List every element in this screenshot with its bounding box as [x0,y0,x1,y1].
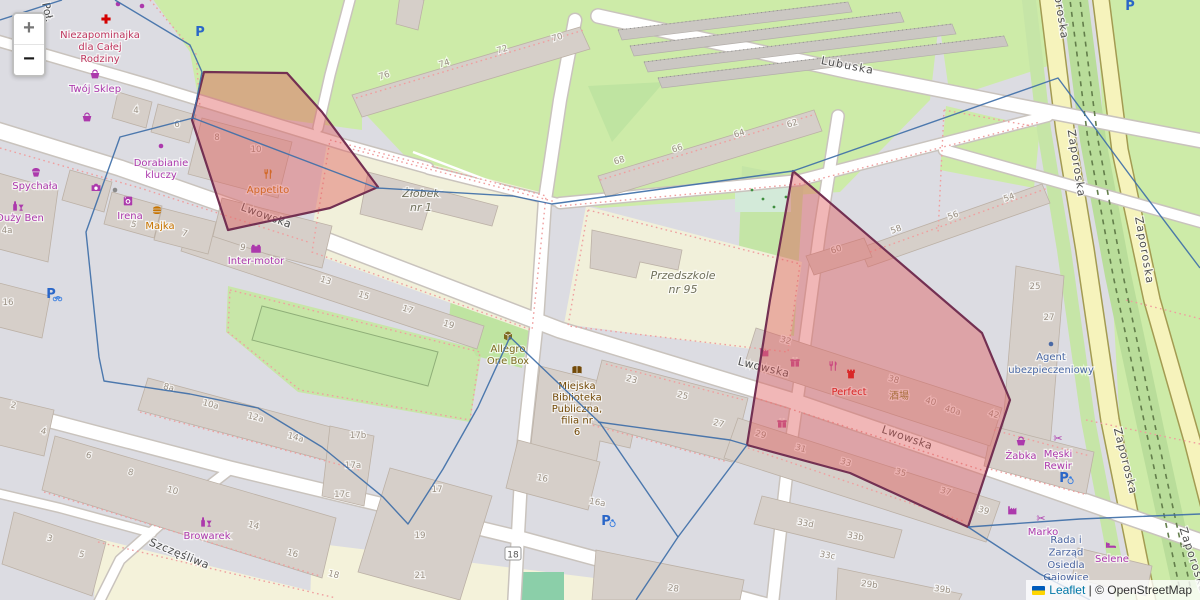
dot-icon [159,144,164,149]
house-number: 4 [133,106,139,116]
poi-label-agent-ubezp: Agent [1036,352,1066,363]
house-number: 27 [1043,313,1054,323]
house-number: 17a [345,461,361,471]
leaflet-link[interactable]: Leaflet [1049,583,1085,597]
house-number: 4a [2,226,13,236]
house-number: 28 [667,583,679,594]
dot-icon [140,4,145,9]
poi-label-biblioteka: filia nr [561,416,594,427]
poi-label-przedszkole: Przedszkole [650,269,715,282]
svg-text:18: 18 [507,551,519,561]
burger-icon [153,206,161,214]
house-number: 17 [431,485,442,495]
house-number: 33c [819,550,837,563]
poi-label-dorabianie-kluczy: Dorabianie [134,158,189,169]
green-dot-icon [785,196,788,199]
poi-label-browarek: Browarek [183,531,230,542]
poi-label-rada-osiedla: Rada i [1050,535,1081,546]
poi-label-inter-motor: Inter-motor [228,256,285,267]
dot-icon [1049,342,1054,347]
poi-label-duzy-ben: Duży Ben [0,213,44,224]
poi-label-rada-osiedla: Osiedla [1047,560,1084,571]
house-number: 17b [350,431,367,441]
poi-label-niezapominajka: Niezapominajka [60,30,140,41]
poi-label-allegro-one-box: One Box [487,356,529,367]
poi-label-dorabianie-kluczy: kluczy [145,170,177,181]
poi-label-agent-ubezp: ubezpieczeniowy [1008,365,1094,376]
poi-label-selene: Selene [1095,554,1129,565]
map-tiles: 468107674727068666462585654602527244a165… [0,0,1200,600]
pharmacy-cross-icon [101,14,110,23]
poi-label-zabka: Żabka [1005,449,1036,462]
poi-label-zlobek: nr 1 [410,201,432,214]
road-shield: 18 [505,547,521,561]
cupcake-icon [32,168,40,177]
house-number: 19 [414,531,425,541]
poi-label-majka: Majka [145,221,174,232]
house-number: 21 [414,571,425,581]
scissors-icon: ✂ [1053,432,1062,445]
boundary-line [678,445,747,537]
svg-text:✂: ✂ [1053,432,1062,445]
zoom-control: + − [12,12,46,77]
parking-plain-icon: P [195,25,205,40]
svg-text:✂: ✂ [1036,512,1045,525]
svg-text:P: P [195,25,205,40]
svg-text:P: P [1059,471,1069,486]
svg-text:P: P [46,287,56,302]
factory-icon [1008,506,1016,514]
parking-plain-icon: P [1125,0,1135,14]
parcel-box-icon [504,331,512,340]
poi-label-rada-osiedla: Zarząd [1049,548,1084,559]
green-dot-icon [751,189,754,192]
poi-label-spychala: Spychała [12,181,58,192]
scissors-icon: ✂ [1036,512,1045,525]
attribution-separator: | [1085,583,1095,597]
book-icon [572,366,581,374]
zoom-in-button[interactable]: + [14,14,44,44]
svg-text:P: P [1125,0,1135,14]
poi-label-zlobek: Żłobek [401,187,440,200]
attribution-bar: Leaflet | © OpenStreetMap [1026,580,1200,600]
house-number: 25 [1029,282,1040,292]
parking-bicycle-icon: P [46,287,62,302]
map-canvas[interactable]: 468107674727068666462585654602527244a165… [0,0,1200,600]
poi-label-irena: Irena [117,211,142,222]
washer-icon [124,197,132,206]
house-number: 16a [588,497,606,510]
basket-icon [83,113,92,121]
poi-label-niezapominajka: Rodziny [80,54,119,65]
poi-label-przedszkole: nr 95 [669,283,698,296]
dot-icon [113,188,118,193]
house-number: 16 [536,473,549,485]
poi-label-niezapominajka: dla Całej [78,42,121,53]
green-dot-icon [762,198,765,201]
parking-wheelchair-icon: P [601,514,615,529]
zoom-out-button[interactable]: − [14,44,44,75]
osm-attribution: © OpenStreetMap [1095,583,1192,597]
poi-label-twoj-sklep: Twój Sklep [68,83,121,95]
poi-label-biblioteka: 6 [574,427,580,438]
svg-text:P: P [601,514,611,529]
ukraine-flag-icon [1032,586,1045,595]
house-number: 17c [334,490,350,500]
house-number: 16 [2,298,13,308]
poi-label-biblioteka: Publiczna, [552,404,603,415]
green-dot-icon [773,206,776,209]
poi-label-biblioteka: Miejska [558,381,595,392]
poi-label-meski-rewir: Męski [1044,449,1073,460]
poi-label-allegro-one-box: Allegro [491,344,526,355]
